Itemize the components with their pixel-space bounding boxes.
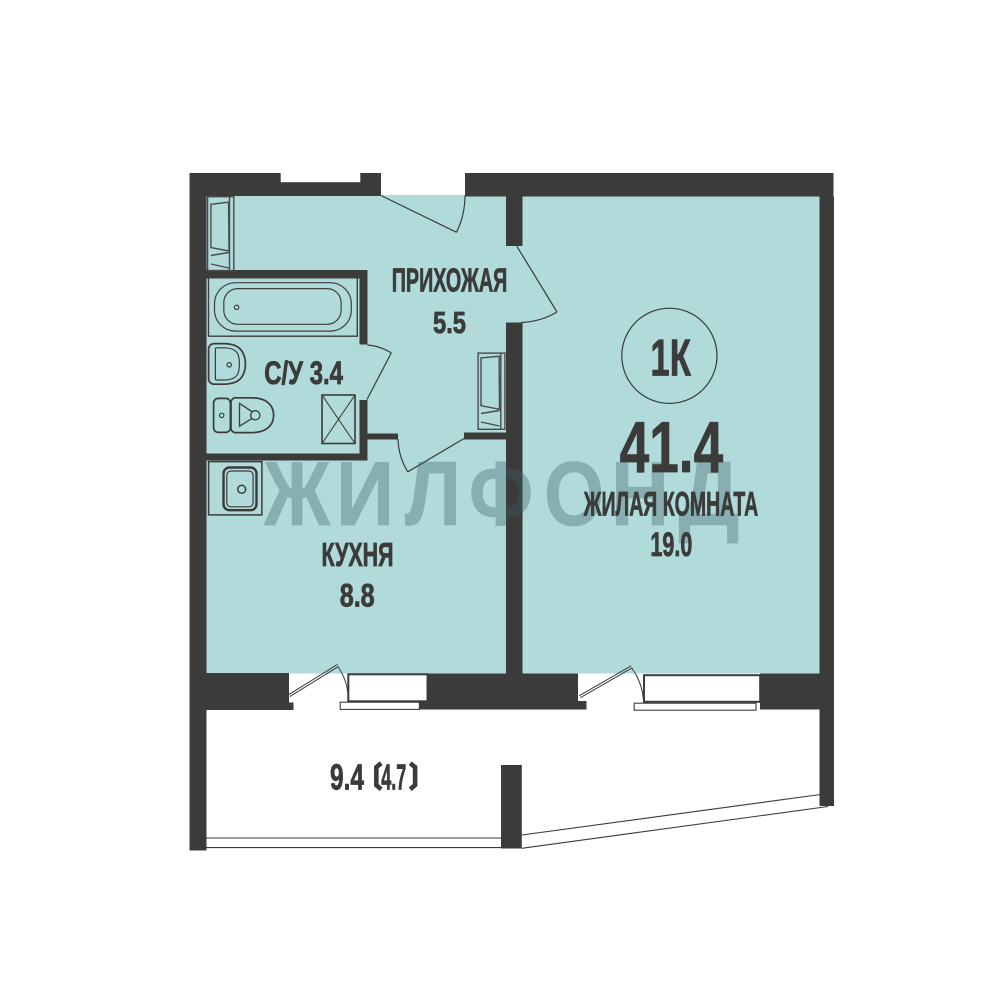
svg-text:Л: Л [405, 444, 461, 545]
svg-text:4.7: 4.7 [381, 756, 406, 797]
svg-text:И: И [336, 444, 394, 545]
svg-text:КУХНЯ: КУХНЯ [322, 536, 394, 573]
svg-text:8.8: 8.8 [340, 576, 375, 613]
svg-text:41.4: 41.4 [620, 407, 724, 488]
svg-text:Ж: Ж [263, 444, 331, 545]
svg-text:ЖИЛАЯ КОМНАТА: ЖИЛАЯ КОМНАТА [583, 485, 758, 523]
svg-text:5.5: 5.5 [433, 305, 466, 340]
svg-text:ПРИХОЖАЯ: ПРИХОЖАЯ [392, 262, 508, 299]
svg-text:Ф: Ф [469, 444, 533, 545]
svg-text:19.0: 19.0 [650, 526, 692, 564]
svg-text:9.4: 9.4 [330, 756, 364, 797]
svg-text:С/У 3.4: С/У 3.4 [264, 355, 343, 391]
svg-text:1К: 1К [650, 329, 691, 387]
